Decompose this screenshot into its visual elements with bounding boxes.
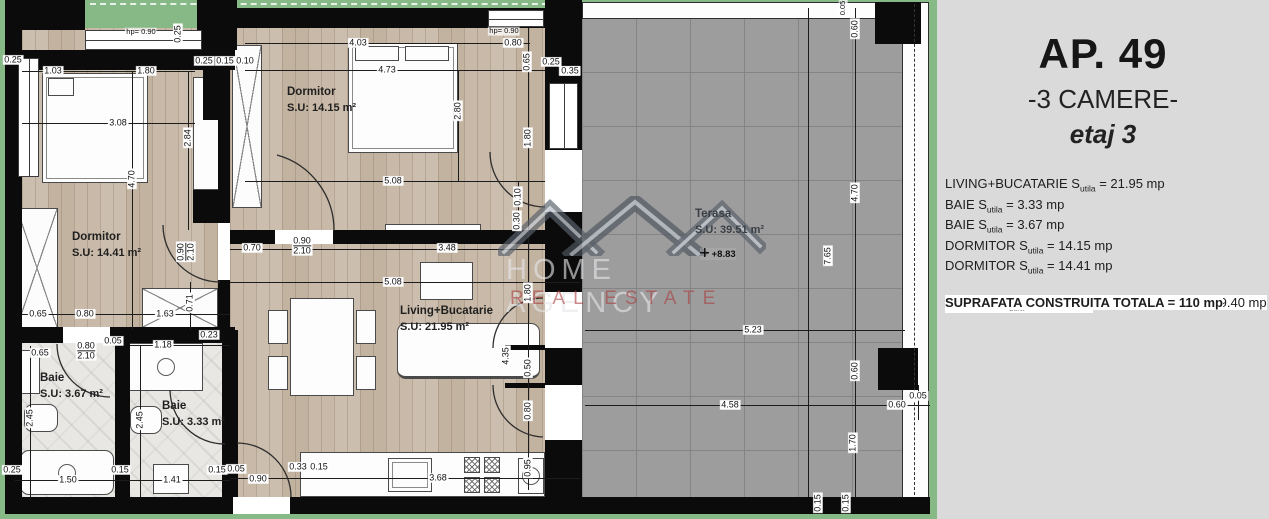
dim-label: 0.802.10 <box>76 341 96 360</box>
dim-label: 4.03 <box>348 38 368 47</box>
panel-area-row: DORMITOR Sutila = 14.41 mp <box>945 258 1269 276</box>
panel-area-row: SUPRAFATA CONSTRUITA TOTALA = 110 mp <box>945 295 1223 310</box>
dim-label: 0.65 <box>30 348 50 357</box>
dim-label: 0.10 <box>513 187 522 207</box>
span: 0.90 <box>175 243 185 261</box>
dim-label: 0.15 <box>813 493 822 513</box>
dim-label: 0.80 <box>503 38 523 47</box>
dim-label: 7.65 <box>823 246 832 266</box>
dim-label: 0.902.10 <box>176 242 195 262</box>
span: 0.90 <box>293 235 311 245</box>
dim-label: 0.71 <box>185 293 194 313</box>
floor-plan: HOME AGENCY REAL ESTATE DormitorS.U: 14.… <box>0 0 937 519</box>
dim-label: 4.70 <box>127 169 136 189</box>
sub: utila <box>987 225 1003 235</box>
dim-label: 2.45 <box>135 410 144 430</box>
t2: 2.10 <box>293 246 311 256</box>
sub: utila <box>1080 184 1096 194</box>
dim-label: 0.15 <box>207 465 227 474</box>
dim-label: 0.15 <box>841 493 850 513</box>
dim-label: 0.95 <box>523 458 532 478</box>
dim-label: 5.08 <box>383 277 403 286</box>
dim-label: 0.05 <box>226 464 246 473</box>
span: = 21.95 mp <box>1096 176 1165 191</box>
panel-area-row: LIVING+BUCATARIE Sutila = 21.95 mp <box>945 176 1269 194</box>
dim-label: 0.30 <box>512 211 521 231</box>
dim-label: 1.03 <box>43 66 63 75</box>
span: = 14.15 mp <box>1043 238 1112 253</box>
dim-label: 0.23 <box>199 330 219 339</box>
dim-label: 1.50 <box>58 475 78 484</box>
dim-label: 0.80 <box>523 401 532 421</box>
dim-label: 2.80 <box>453 101 462 121</box>
dim-label: 0.70 <box>242 243 262 252</box>
dim-label: 0.65 <box>522 52 531 72</box>
span: DORMITOR S <box>945 238 1028 253</box>
span: +8.83 <box>709 249 736 260</box>
dim-label: hp= 0.90 <box>125 28 156 36</box>
floorplan-screenshot: HOME AGENCY REAL ESTATE DormitorS.U: 14.… <box>0 0 1269 519</box>
level-cross-icon <box>700 248 709 257</box>
span: DORMITOR S <box>945 258 1028 273</box>
span: BAIE S <box>945 217 987 232</box>
span: 0.80 <box>77 340 95 350</box>
dim-label: 0.15 <box>110 465 130 474</box>
dim-label: 0.25 <box>173 24 182 44</box>
span: = 3.33 mp <box>1003 197 1065 212</box>
dim-label: 3.08 <box>108 118 128 127</box>
dim-label: 1.63 <box>155 309 175 318</box>
span: = 14.41 mp <box>1043 258 1112 273</box>
dim-label: 4.35 <box>501 346 510 366</box>
dim-label: 0.25 <box>2 465 22 474</box>
rooms-count-subtitle: -3 CAMERE- <box>937 84 1269 115</box>
dim-label: 1.18 <box>153 340 173 349</box>
dim-label: 1.41 <box>162 475 182 484</box>
dim-label: 0.80 <box>75 309 95 318</box>
dim-label: 0.15 <box>215 56 235 65</box>
dim-label: 0.35 <box>560 66 580 75</box>
level-marker: +8.83 <box>700 248 736 260</box>
floor-label: etaj 3 <box>937 119 1269 150</box>
dim-label: 0.60 <box>850 19 859 39</box>
dim-label: 0.33 <box>288 462 308 471</box>
sub: utila <box>1028 245 1044 255</box>
span: = 3.67 mp <box>1003 217 1065 232</box>
dim-label: 0.902.10 <box>292 236 312 255</box>
dim-label: 0.60 <box>887 400 907 409</box>
info-panel: AP. 49 -3 CAMERE- etaj 3 LIVING+BUCATARI… <box>937 0 1269 519</box>
t2: 2.10 <box>186 243 196 261</box>
dim-label: 3.68 <box>428 473 448 482</box>
panel-area-row: DORMITOR Sutila = 14.15 mp <box>945 238 1269 256</box>
span: SUPRAFATA CONSTRUITA TOTALA = 110 mp <box>945 295 1223 310</box>
dim-label: 0.25 <box>541 57 561 66</box>
dim-label: 0.25 <box>3 55 23 64</box>
dim-label: 0.05 <box>908 391 928 400</box>
dim-label: 1.80 <box>136 66 156 75</box>
dimension-labels-layer: 0.25hp= 0.900.251.031.800.250.150.103.08… <box>0 0 937 519</box>
dim-label: 0.15 <box>309 462 329 471</box>
sub: utila <box>1028 266 1044 276</box>
dim-label: 0.05 <box>839 0 847 16</box>
dim-label: 1.80 <box>523 128 532 148</box>
dim-label: 4.70 <box>850 183 859 203</box>
t2: 2.10 <box>77 351 95 361</box>
dim-label: 3.48 <box>437 243 457 252</box>
area-list: LIVING+BUCATARIE Sutila = 21.95 mpBAIE S… <box>945 176 1269 276</box>
apartment-title: AP. 49 <box>937 30 1269 78</box>
dim-label: 0.90 <box>248 474 268 483</box>
dim-label: hp= 0.90 <box>488 27 519 35</box>
dim-label: 0.60 <box>850 361 859 381</box>
dim-label: 2.84 <box>183 128 192 148</box>
dim-label: 0.25 <box>194 56 214 65</box>
dim-label: 0.05 <box>103 336 123 345</box>
panel-area-row: BAIE Sutila = 3.33 mp <box>945 197 1269 215</box>
dim-label: 5.23 <box>743 325 763 334</box>
dim-label: 2.45 <box>25 408 34 428</box>
dim-label: 1.80 <box>523 283 532 303</box>
dim-label: 5.08 <box>383 176 403 185</box>
dim-label: 4.58 <box>720 400 740 409</box>
sub: utila <box>987 204 1003 214</box>
dim-label: 0.50 <box>523 358 532 378</box>
panel-area-row: BAIE Sutila = 3.67 mp <box>945 217 1269 235</box>
dim-label: 0.65 <box>28 309 48 318</box>
dim-label: 4.73 <box>377 65 397 74</box>
span: BAIE S <box>945 197 987 212</box>
dim-label: 1.70 <box>848 433 857 453</box>
span: LIVING+BUCATARIE S <box>945 176 1080 191</box>
dim-label: 0.10 <box>235 56 255 65</box>
